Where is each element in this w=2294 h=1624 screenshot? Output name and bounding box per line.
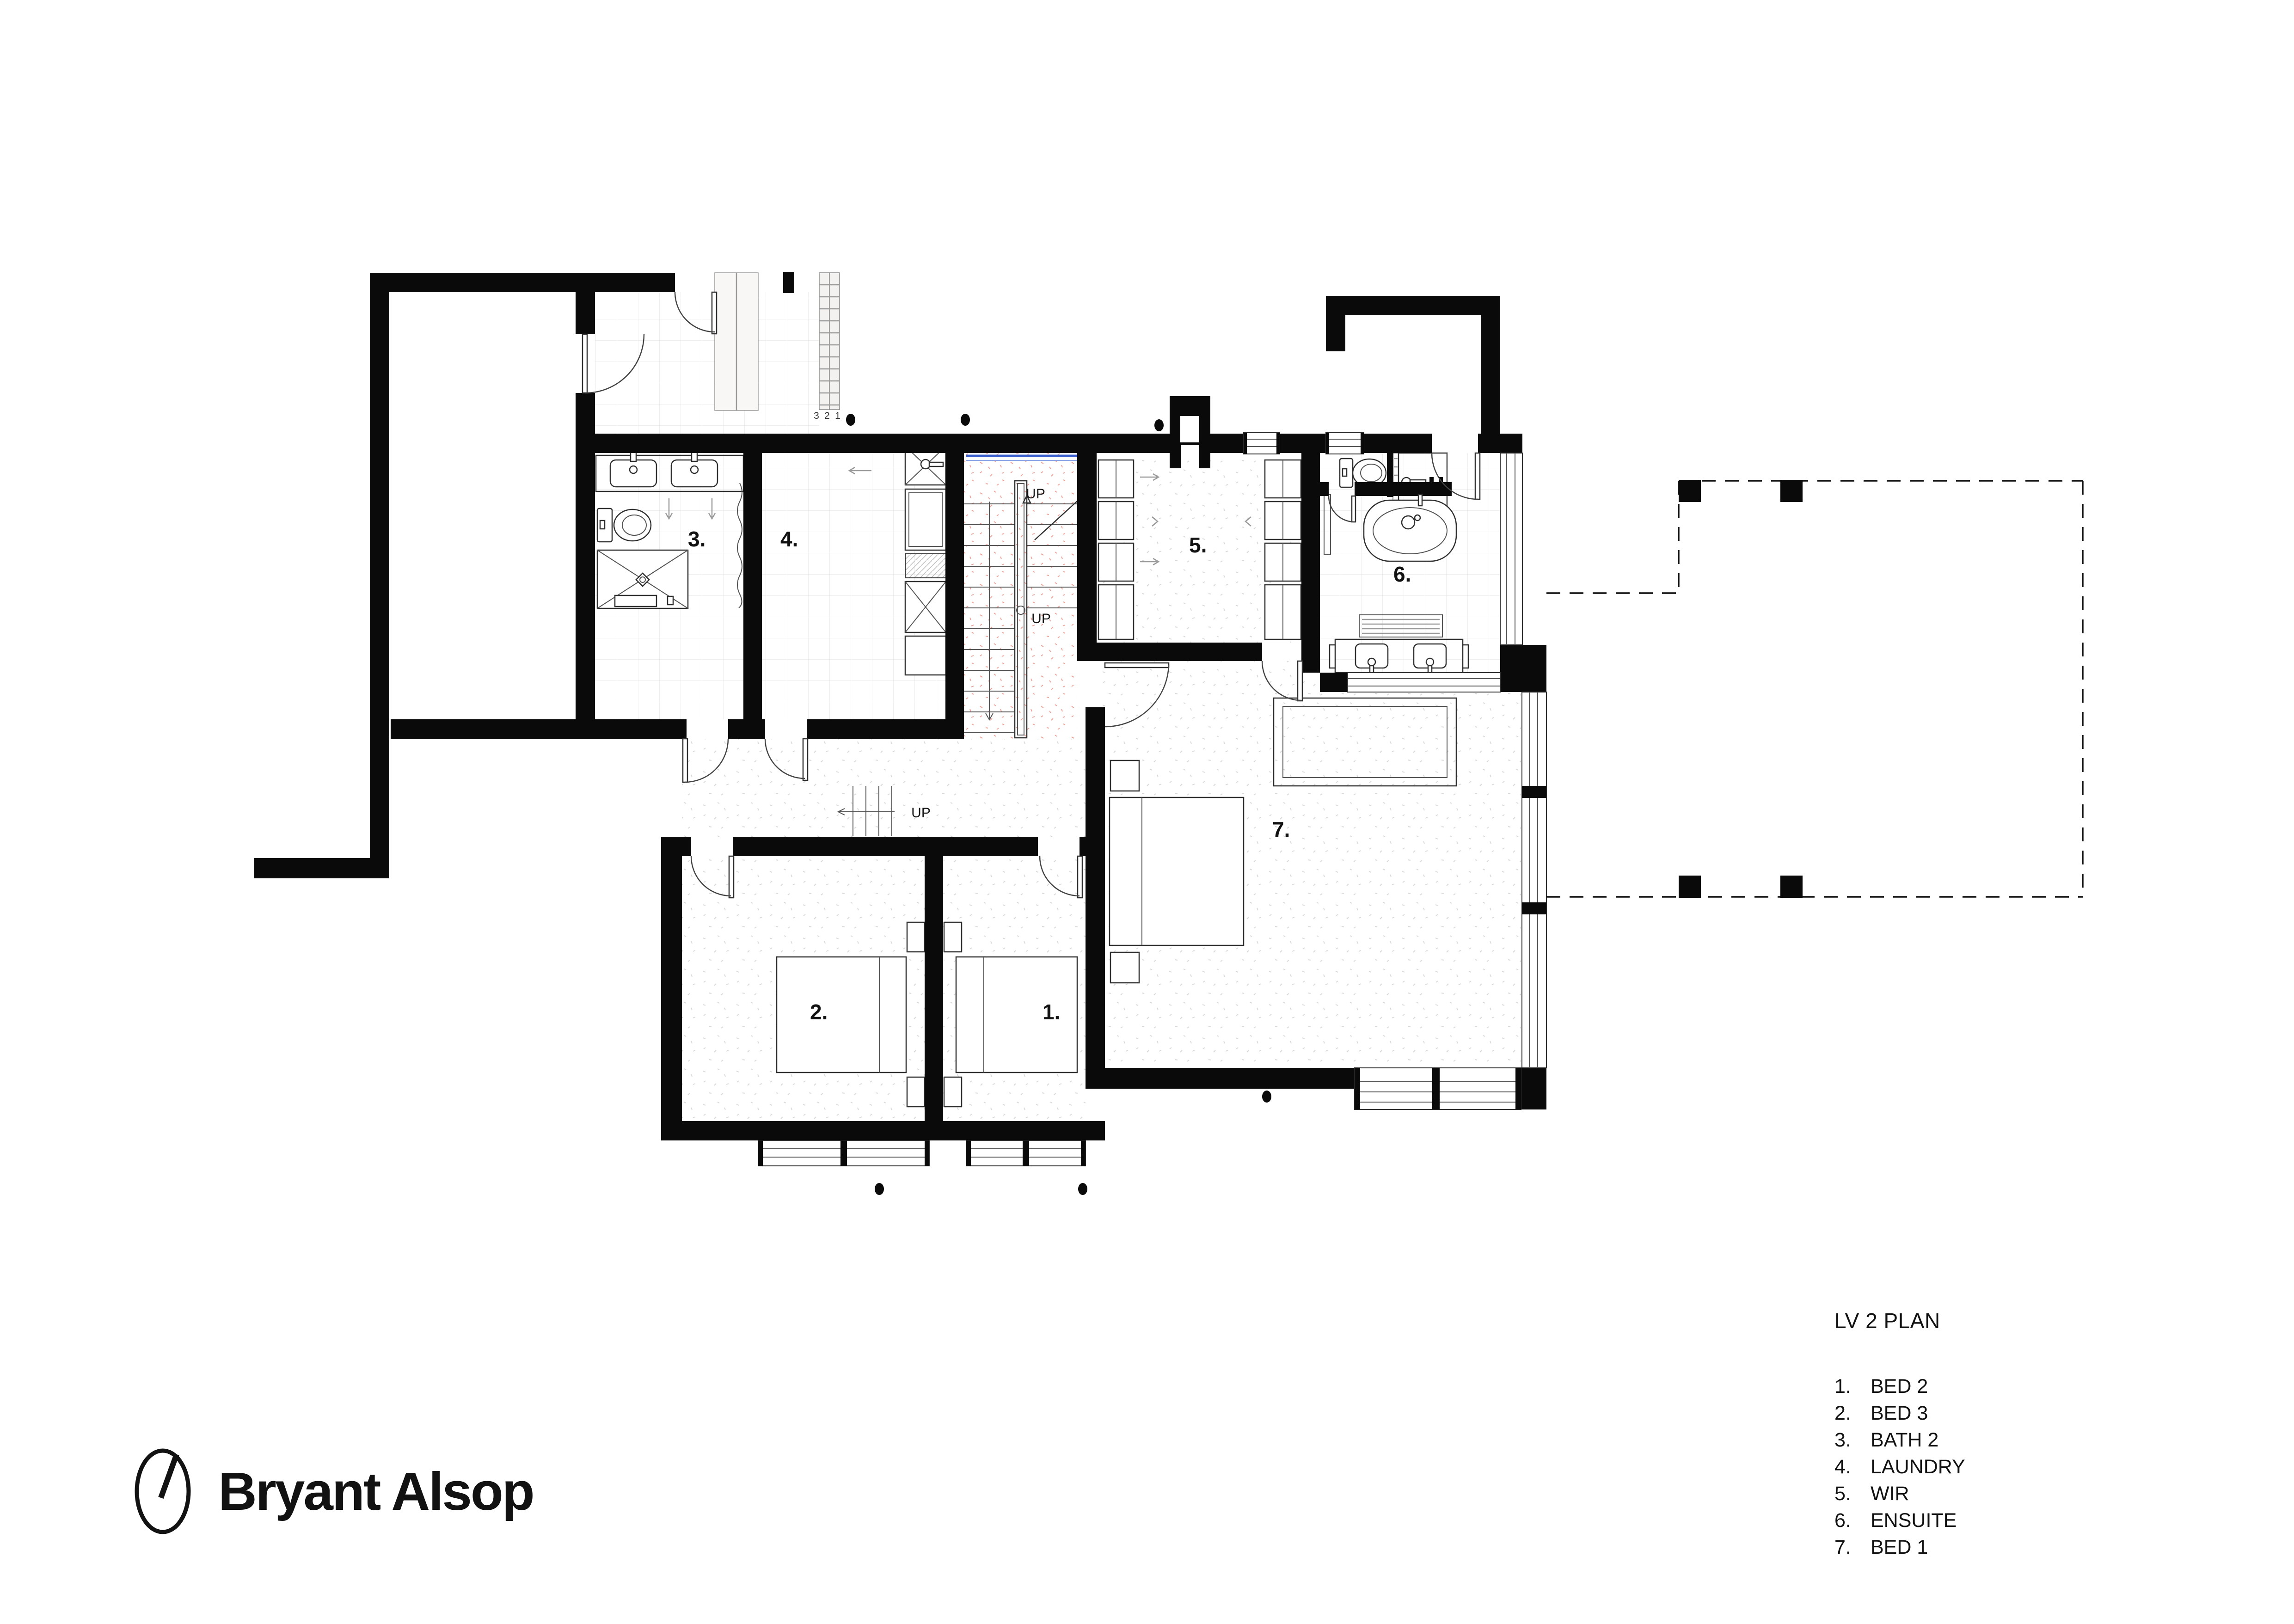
pergola-post [1780, 480, 1803, 502]
brand-logo: Bryant Alsop [134, 1446, 534, 1536]
pergola-post [1679, 480, 1701, 502]
legend-row: 1.BED 2 [1834, 1373, 1965, 1400]
stair-up-label-2: UP [1031, 611, 1051, 626]
legend-row: 4.LAUNDRY [1834, 1453, 1965, 1480]
label-laundry: 4. [780, 527, 798, 551]
laundry-cupboard [905, 636, 946, 675]
stair-up-label-1: UP [1026, 486, 1045, 502]
legend-row: 3.BATH 2 [1834, 1427, 1965, 1453]
pergola-post [1780, 876, 1803, 898]
void-room-floor [389, 292, 576, 858]
corridor-floor [682, 739, 1105, 837]
stairwell-floor [964, 453, 1077, 739]
pergola-outline [1546, 480, 2083, 898]
bathtub-icon [1364, 495, 1456, 561]
legend-row: 5.WIR [1834, 1480, 1965, 1507]
window-ensuite-north [1326, 433, 1364, 454]
ensuite-halfwall [1355, 482, 1452, 496]
page: { "page": {"background": "#ffffff"}, "br… [0, 0, 2294, 1622]
dryer-icon [905, 582, 946, 632]
pergola-post [1679, 876, 1701, 898]
window-bed2-south [966, 1140, 1086, 1166]
window-master-south [1355, 1068, 1521, 1109]
window-ensuite-south [1348, 673, 1500, 692]
window-bed3-south [758, 1140, 929, 1166]
legend-row: 7.BED 1 [1834, 1534, 1965, 1561]
legend-row: 2.BED 3 [1834, 1400, 1965, 1427]
clock-dial-icon [134, 1446, 194, 1536]
tread-number-3: 3 [814, 411, 819, 421]
corridor-up-label: UP [911, 805, 931, 821]
tread-number-2: 2 [824, 411, 830, 421]
wir-wardrobe-left [1098, 460, 1134, 639]
legend: LV 2 PLAN 1.BED 2 2.BED 3 3.BATH 2 4.LAU… [1834, 1308, 1965, 1561]
hall-floor [595, 292, 819, 434]
brand-name: Bryant Alsop [218, 1460, 534, 1522]
washing-machine-icon [905, 554, 946, 578]
toilet-icon [597, 509, 651, 542]
label-bed2: 1. [1043, 1000, 1060, 1024]
tread-number-1: 1 [835, 411, 840, 421]
legend-title: LV 2 PLAN [1834, 1308, 1965, 1333]
label-bed1: 7. [1272, 817, 1290, 841]
window-ensuite-east [1500, 453, 1522, 645]
label-bath2: 3. [688, 527, 705, 551]
label-bed3: 2. [810, 1000, 828, 1024]
window-master-east [1522, 692, 1546, 1068]
legend-row: 6.ENSUITE [1834, 1507, 1965, 1534]
laundry-cabinet [905, 489, 946, 550]
wir-wardrobe-right [1265, 460, 1301, 639]
label-ensuite: 6. [1393, 562, 1411, 586]
window-wir-north [1244, 433, 1280, 454]
shower-icon [597, 550, 688, 608]
label-wir: 5. [1189, 533, 1207, 557]
